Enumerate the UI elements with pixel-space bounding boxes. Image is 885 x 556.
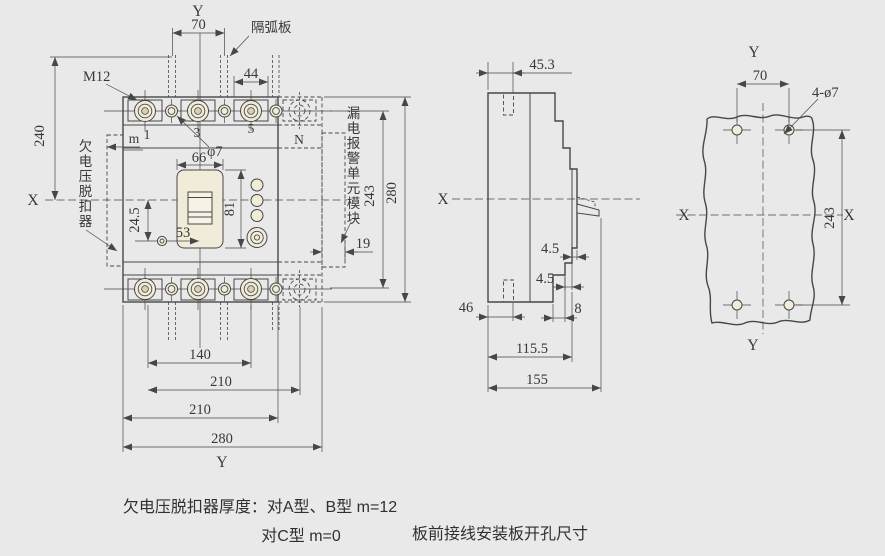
dim-243-front: 243 <box>330 111 389 288</box>
terminal-3-label: 3 <box>194 125 201 140</box>
dim-m-label: m <box>129 131 140 146</box>
dim-4-5-lower-label: 4.5 <box>536 271 554 287</box>
side-mount-slot-top <box>504 93 514 115</box>
terminal-n-label: N <box>294 132 304 147</box>
dim-280-bottom-label: 280 <box>211 431 233 447</box>
undervoltage-release-box <box>107 135 123 266</box>
dim-115-5-label: 115.5 <box>516 341 548 357</box>
side-mount-slot-bottom <box>504 280 514 302</box>
annotation-undervoltage: 欠电压脱扣器 <box>77 139 118 251</box>
caption-mounting-plate: 板前接线安装板开孔尺寸 <box>412 525 588 543</box>
undervoltage-label: 欠电压脱扣器 <box>77 139 93 229</box>
m12-label: M12 <box>83 69 110 85</box>
neutral-pole-dashed <box>278 92 322 307</box>
dim-8-label: 8 <box>574 301 581 317</box>
mount-axis-x-left: X <box>678 207 689 224</box>
dim-210-outer-label: 210 <box>210 374 232 390</box>
dim-70-mount: 70 <box>737 68 789 122</box>
front-view: 70 Y 44 隔弧板 M12 φ7 1 3 5 N m <box>27 3 411 471</box>
phi7-label: φ7 <box>207 144 223 160</box>
annotation-arc-barrier: 隔弧板 <box>230 20 292 56</box>
dim-4-5-upper-label: 4.5 <box>541 241 559 257</box>
terminal-m12-bottom <box>135 279 262 300</box>
dim-140-label: 140 <box>189 347 211 363</box>
dim-243-mount: 243 <box>796 130 850 305</box>
dim-70-mount-label: 70 <box>753 68 768 84</box>
dim-155-label: 155 <box>526 372 548 388</box>
mount-axis-y-top: Y <box>748 44 759 61</box>
side-handle <box>577 204 599 216</box>
axis-x-side-label: X <box>437 191 448 208</box>
dim-210-body-label: 210 <box>189 402 211 418</box>
mount-axis-y-bottom: Y <box>747 337 758 354</box>
holes-4-phi7-label: 4-ø7 <box>812 85 839 101</box>
dim-45-3-label: 45.3 <box>529 57 554 73</box>
dim-280-right-label: 280 <box>384 182 400 204</box>
mounting-view: Y X X Y 70 4-ø7 243 <box>676 44 855 354</box>
leakage-module-label: 漏电报警单元模块 <box>345 106 361 226</box>
dim-81: 81 <box>222 170 246 248</box>
dim-210-body: 210 <box>123 402 278 418</box>
annotation-m12: M12 <box>83 69 137 100</box>
side-view: X 45.3 4.5 <box>437 57 640 392</box>
drawing-canvas: 70 Y 44 隔弧板 M12 φ7 1 3 5 N m <box>0 0 885 556</box>
annotation-leakage-module: 漏电报警单元模块 <box>341 106 360 243</box>
dim-81-label: 81 <box>222 202 238 217</box>
mounting-plate-outline <box>703 115 815 325</box>
dim-19-label: 19 <box>356 236 371 252</box>
dim-280-bottom: 280 <box>123 431 322 447</box>
dim-19: 19 <box>310 236 373 260</box>
axis-y-top-label: Y <box>192 3 203 20</box>
mount-axis-x-right: X <box>843 207 854 224</box>
terminal-m12-top <box>135 101 262 122</box>
dim-70-top: 70 <box>173 17 225 56</box>
front-bottom-dims: 140 210 210 280 Y <box>123 305 322 471</box>
axis-y-bottom-label: Y <box>216 454 227 471</box>
dim-46-label: 46 <box>459 300 474 316</box>
dim-210-outer: 210 <box>148 374 300 390</box>
arc-barrier-label: 隔弧板 <box>251 20 292 35</box>
dim-53-label: 53 <box>176 225 191 241</box>
terminal-1-label: 1 <box>144 127 151 142</box>
dim-243-front-label: 243 <box>362 185 378 207</box>
dim-66-label: 66 <box>192 150 207 166</box>
toggle-handle <box>188 192 212 224</box>
dim-45-3: 45.3 <box>476 57 572 93</box>
caption-thickness-line2: 对C型 m=0 <box>261 527 341 545</box>
dim-24-5-label: 24.5 <box>127 207 143 232</box>
dim-24-5: 24.5 <box>127 200 158 241</box>
reset-button <box>157 236 166 245</box>
dim-46: 46 <box>459 300 525 321</box>
test-button <box>247 228 267 248</box>
indicator-lamps <box>251 179 263 222</box>
dim-m: m <box>107 131 143 150</box>
terminal-5-label: 5 <box>248 121 255 136</box>
dim-4-5-lower: 4.5 <box>536 265 584 290</box>
captions: 欠电压脱扣器厚度：对A型、B型 m=12 对C型 m=0 板前接线安装板开孔尺寸 <box>123 498 588 545</box>
dim-44-label: 44 <box>244 66 259 82</box>
dim-240-label: 240 <box>32 125 48 147</box>
dim-243-mount-label: 243 <box>822 207 838 229</box>
axis-x-left-label: X <box>27 192 38 209</box>
caption-thickness-line1: 欠电压脱扣器厚度：对A型、B型 m=12 <box>123 498 397 516</box>
dim-140: 140 <box>148 347 251 363</box>
